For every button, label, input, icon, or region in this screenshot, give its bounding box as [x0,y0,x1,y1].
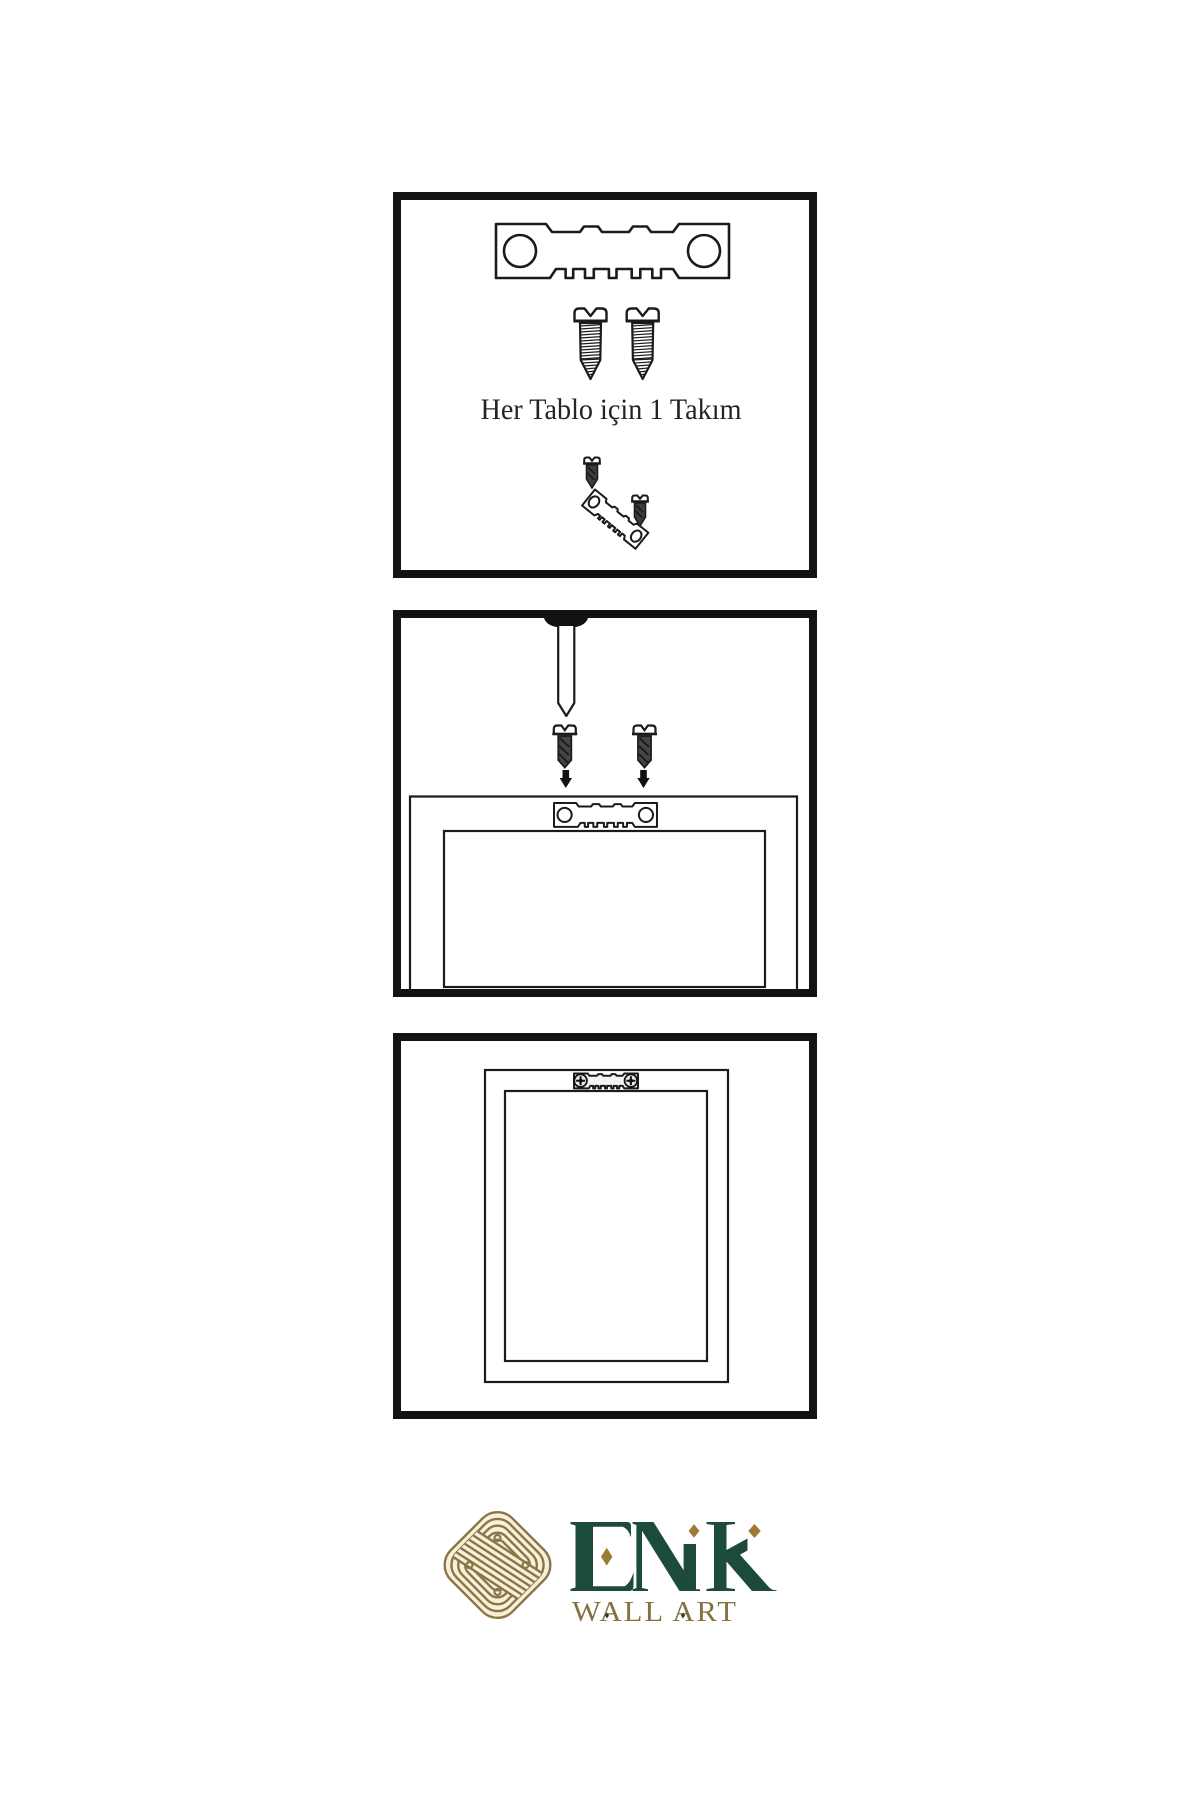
svg-text:Her Tablo için 1 Takım: Her Tablo için 1 Takım [481,393,742,426]
svg-text:WALL ART: WALL ART [572,1597,738,1628]
